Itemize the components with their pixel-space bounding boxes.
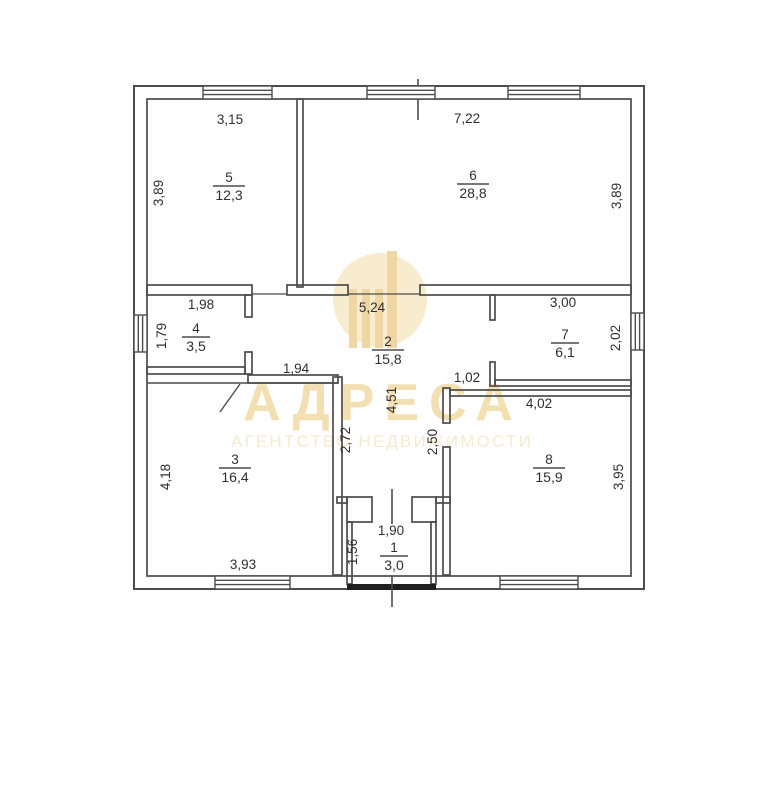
dim-room4-left: 1,79 bbox=[154, 323, 169, 349]
window-room8-bottom bbox=[500, 576, 578, 589]
wall-room5-room6 bbox=[297, 99, 303, 287]
room-label-8: 8 15,9 bbox=[533, 452, 565, 485]
dim-hall-top: 5,24 bbox=[359, 300, 386, 315]
wall-top-band bbox=[420, 285, 631, 295]
room-label-3: 3 16,4 bbox=[219, 452, 251, 485]
room-number: 1 bbox=[390, 540, 398, 555]
room-number: 5 bbox=[225, 170, 233, 185]
room-number: 4 bbox=[192, 321, 200, 336]
wall-room8-left bbox=[443, 447, 450, 575]
room-area: 15,8 bbox=[374, 351, 401, 367]
window-room7-right bbox=[631, 313, 644, 350]
dim-room5-left: 3,89 bbox=[151, 180, 166, 206]
room-area: 12,3 bbox=[215, 187, 242, 203]
room-number: 7 bbox=[561, 327, 569, 342]
window-room6-top-left bbox=[367, 86, 435, 99]
floorplan-page: АДРЕСА АГЕНТСТВО НЕДВИЖИМОСТИ bbox=[0, 0, 758, 800]
room-label-1: 1 3,0 bbox=[380, 540, 408, 573]
dim-hall-height: 4,51 bbox=[384, 387, 399, 413]
room-number: 8 bbox=[545, 452, 553, 467]
window-room4-left bbox=[134, 315, 147, 352]
room-label-5: 5 12,3 bbox=[213, 170, 245, 203]
dim-room3-bottom: 3,93 bbox=[230, 557, 256, 572]
dim-room8-right: 3,95 bbox=[611, 464, 626, 490]
room-area: 16,4 bbox=[221, 469, 248, 485]
door-leaf-room3 bbox=[220, 384, 240, 412]
dim-room1-top: 1,90 bbox=[378, 523, 404, 538]
window-room3-bottom bbox=[215, 576, 290, 589]
dim-room1-left: 1,56 bbox=[345, 539, 360, 565]
room-label-7: 7 6,1 bbox=[551, 327, 579, 360]
wall-room1-right bbox=[431, 522, 436, 584]
dim-room4-top: 1,98 bbox=[188, 297, 214, 312]
dim-room7-top: 3,00 bbox=[550, 295, 576, 310]
logo-bar bbox=[349, 289, 357, 348]
dim-wall-above-room3: 1,94 bbox=[283, 361, 310, 376]
dim-room6-right: 3,89 bbox=[609, 183, 624, 209]
dim-hall-right-height: 2,50 bbox=[425, 429, 440, 455]
room-area: 3,0 bbox=[384, 557, 404, 573]
dim-room5-top: 3,15 bbox=[217, 112, 243, 127]
room-number: 3 bbox=[231, 452, 239, 467]
room-label-6: 6 28,8 bbox=[457, 168, 489, 201]
dim-room8-top: 4,02 bbox=[526, 396, 552, 411]
dim-room3-left: 4,18 bbox=[158, 464, 173, 490]
door-jamb-room1 bbox=[412, 497, 436, 522]
room-area: 15,9 bbox=[535, 469, 562, 485]
room-label-4: 4 3,5 bbox=[182, 321, 210, 354]
dim-hall-left-height: 2,72 bbox=[338, 427, 353, 453]
wall-room4-right bbox=[245, 295, 252, 317]
dim-room7-right: 2,02 bbox=[608, 325, 623, 351]
room-area: 28,8 bbox=[459, 185, 486, 201]
room-number: 2 bbox=[384, 334, 392, 349]
logo-bar bbox=[375, 289, 383, 348]
room-area: 6,1 bbox=[555, 344, 575, 360]
room-number: 6 bbox=[469, 168, 477, 183]
wall-top-band bbox=[147, 285, 252, 295]
room-area: 3,5 bbox=[186, 338, 206, 354]
dim-wall-above-room8: 1,02 bbox=[454, 370, 480, 385]
window-room6-top-right bbox=[508, 86, 580, 99]
dim-room6-top: 7,22 bbox=[454, 111, 480, 126]
logo-bar bbox=[362, 289, 370, 348]
wall-room7-left bbox=[490, 295, 495, 320]
floorplan-canvas: АДРЕСА АГЕНТСТВО НЕДВИЖИМОСТИ bbox=[0, 0, 758, 800]
door-jamb-room1 bbox=[347, 497, 372, 522]
room-labels: 5 12,3 6 28,8 4 3,5 2 15,8 7 6,1 3 16,4 bbox=[182, 168, 579, 573]
watermark-tagline: АГЕНТСТВО НЕДВИЖИМОСТИ bbox=[231, 432, 533, 451]
wall-room4-right bbox=[245, 352, 252, 374]
window-room5-top bbox=[203, 86, 272, 99]
wall-room4-bottom bbox=[147, 367, 245, 374]
